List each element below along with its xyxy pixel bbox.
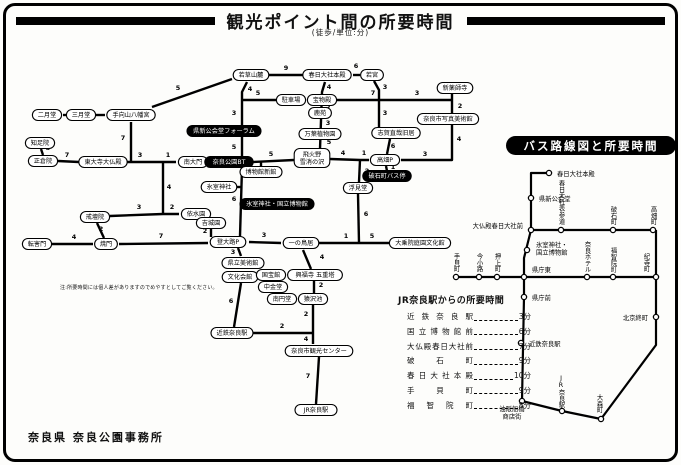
walk-time-label: 4 (341, 149, 346, 157)
walk-time-label: 6 (232, 195, 237, 203)
walk-node-label-kokuhokan: 国宝館 (262, 271, 281, 279)
walk-time-label: 2 (319, 281, 324, 289)
walk-time-label: 3 (137, 203, 142, 211)
bus-panel-title: バス路線図と所要時間 (506, 136, 676, 155)
jr-list-item-leader (474, 349, 518, 350)
walk-time-label: 2 (304, 310, 309, 318)
jr-list-item-name: 手貝町 (407, 385, 473, 396)
walk-node-label-gojunoto: 興福寺 五重塔 (295, 271, 335, 279)
walk-node-label-tegaimon: 転害門 (28, 240, 47, 248)
walk-node-label-wareishi-bt: 破石町バス停 (368, 172, 405, 180)
bus-stop-label-kencho-higashi: 県庁東 (532, 265, 552, 274)
walk-node-label-nanendo: 南円堂 (273, 295, 292, 303)
walk-time-label: 6 (391, 142, 396, 150)
walk-time-label: 3 (138, 151, 143, 159)
walk-node-label-kanko-center: 奈良市観光センター (291, 347, 347, 355)
jr-list-item: 国立博物館前6分 (398, 326, 531, 337)
walk-edge (249, 242, 281, 243)
walk-node-label-tobihino: 飛火野 (303, 150, 322, 158)
footnote: 注:所要時間には個人差がありますのでめやすとしてご覧ください。 (60, 284, 218, 291)
bus-stop-label-wareishi-cho: 破石町 (610, 205, 617, 226)
jr-list-item-leader (474, 334, 518, 335)
jr-list-item-time: 9分 (519, 355, 531, 366)
walk-node-label-yakimon: 焼門 (100, 240, 112, 248)
walk-node-label-pref-museum: 県立美術館 (228, 259, 259, 267)
walk-node-label-homotsuden: 宝物殿 (313, 96, 332, 104)
walk-edge (358, 194, 359, 243)
walk-node-label-forum: 県新公会堂フォーラム (193, 127, 255, 135)
walk-time-label: 3 (383, 109, 388, 117)
bus-stop-label-kintetsu-nara-eki: 近鉄奈良駅 (529, 339, 561, 348)
jr-list-item-name: 国立博物館前 (407, 326, 473, 337)
walk-node-label-chukondo: 中金堂 (264, 283, 283, 291)
walk-time-label: 4 (320, 253, 325, 261)
walk-time-label: 3 (423, 150, 428, 158)
walk-time-label: 3 (231, 248, 236, 256)
jr-list-item-leader (474, 393, 518, 394)
walk-node-label-parking: 駐車場 (282, 96, 301, 104)
walk-time-label: 6 (354, 62, 359, 70)
bus-stop-label-kencho-mae: 県庁前 (532, 293, 551, 302)
bus-stop-label-jr-nara-eki: JR奈良駅 (558, 375, 565, 409)
jr-list-item-time: 6分 (519, 326, 531, 337)
walk-time-label: 7 (371, 89, 376, 97)
walk-edge (316, 357, 319, 404)
walk-time-label: 2 (458, 102, 463, 110)
walk-edge (41, 149, 43, 155)
walk-edge (238, 248, 241, 256)
jr-list-item-name: 近鉄奈良駅 (407, 311, 473, 322)
bus-stop-nara-hotel (584, 274, 589, 279)
walk-time-label: 4 (167, 183, 172, 191)
bus-stop-label-himuro-kokuritsu: 氷室神社・国立博物館 (536, 240, 567, 257)
walk-time-label: 7 (65, 151, 70, 159)
bus-stop-omotesando (558, 227, 563, 232)
jr-list-item: 手貝町9分 (398, 385, 531, 396)
walk-edge (234, 283, 241, 327)
bus-stop-kencho-higashi (521, 274, 526, 279)
jr-list-item-name: 春日大社本殿 (407, 370, 473, 381)
walk-edge (330, 159, 369, 160)
walk-node-label-jr-nara: JR奈良駅 (303, 406, 329, 414)
walk-time-label: 3 (415, 89, 420, 97)
bus-stop-label-kenshin-kokaido: 県新公会堂 (539, 194, 570, 203)
bus-stop-kasuga-honden (546, 170, 551, 175)
jr-list-item: 近鉄奈良駅3分 (398, 311, 531, 322)
walk-edge (387, 139, 390, 154)
walk-time-label: 5 (232, 143, 237, 151)
bus-stop-oshiage-cho (494, 274, 499, 279)
walk-node-label-sangatsudo: 三月堂 (72, 111, 91, 119)
walk-time-label: 5 (269, 150, 274, 158)
walk-time-label: 2 (170, 203, 175, 211)
walk-node-label-wakakusa: 若草山麓 (239, 71, 264, 79)
walk-time-label: 7 (159, 232, 164, 240)
jr-list-header: JR奈良駅からの所要時間 (398, 293, 531, 306)
walk-edge (359, 160, 360, 182)
walk-node-label-museum-annex: 博物館新館 (246, 168, 277, 176)
bus-stop-kitakyobate-cho (653, 314, 658, 319)
walk-edge (110, 214, 179, 216)
walk-time-label: 3 (232, 109, 237, 117)
walk-edge (58, 161, 79, 162)
bus-stop-takabatake-cho (650, 227, 655, 232)
walk-node-label-daijoin: 大乗院庭園文化館 (395, 239, 445, 247)
jr-list-item: 破石町9分 (398, 355, 531, 366)
jr-list-item-leader (474, 320, 518, 321)
walk-node-label-takabatake-p: 高畑P (377, 156, 393, 164)
walk-time-label: 2 (280, 322, 285, 330)
bus-stop-omori-cho (598, 416, 603, 421)
walk-node-label-tobihino: 雪消の沢 (300, 158, 326, 166)
walk-time-label: 7 (306, 372, 311, 380)
walk-node-label-rokuen: 鹿苑 (314, 109, 326, 117)
walk-time-label: 1 (362, 149, 367, 157)
bus-stop-himuro-kokuritsu (524, 247, 529, 252)
walk-edge (242, 82, 247, 157)
bus-stop-label-oshiage-cho: 押上町 (494, 252, 501, 273)
bus-stop-label-kitakyobate-cho: 北京終町 (623, 313, 649, 322)
walk-time-label: 1 (166, 151, 171, 159)
walk-node-label-shiga-naoya: 志賀直哉旧居 (377, 129, 414, 137)
walk-time-label: 7 (121, 134, 126, 142)
jr-list-item: 福智院町8分 (398, 400, 531, 411)
jr-list-item-time: 3分 (519, 311, 531, 322)
walk-time-label: 5 (256, 89, 261, 97)
jr-list-item-leader (474, 408, 518, 409)
walk-node-label-yoshikien: 吉城園 (202, 220, 221, 227)
walk-node-label-himuro: 氷室神社 (207, 183, 232, 191)
walk-node-label-chisokuin: 知足院 (31, 139, 50, 147)
bus-stop-label-fukuchiin-cho: 福智院町 (610, 246, 617, 273)
walk-time-label: 3 (326, 119, 331, 127)
bus-stop-label-tegai-cho: 手貝町 (453, 252, 460, 273)
walk-time-label: 6 (229, 297, 234, 305)
walk-time-label: 4 (248, 85, 253, 93)
jr-list-rows: 近鉄奈良駅3分国立博物館前6分大仏殿春日大社前7分破石町9分春日大社本殿10分手… (398, 311, 531, 411)
walk-time-label: 5 (176, 84, 181, 92)
walk-node-label-kasuga-honden: 春日大社本殿 (308, 71, 345, 79)
bus-stop-label-nara-hotel: 奈良ホテル (584, 240, 591, 273)
walk-edge (303, 250, 311, 269)
bus-stop-label-daibutsuden-kasuga-mae: 大仏殿春日大社前 (473, 221, 523, 230)
walk-node-label-himuro-bt: 氷室神社・国立博物館 (246, 200, 308, 208)
walk-node-label-daibutsuden: 東大寺大仏殿 (84, 158, 121, 166)
walk-node-label-tamukeyama: 手向山八幡宮 (112, 111, 149, 119)
walk-node-label-nandaimon: 南大門 (184, 158, 203, 166)
walk-edge (119, 243, 208, 244)
walk-node-label-wakamiya: 若宮 (366, 71, 378, 79)
jr-list-item-time: 9分 (519, 385, 531, 396)
walk-node-label-noborioji-p: 登大路P (217, 238, 240, 246)
bus-stop-label-omori-cho: 大森町 (596, 393, 603, 414)
walk-edge (374, 81, 379, 127)
bus-stop-imakoji (476, 274, 481, 279)
walk-node-label-photo-museum: 奈良市写真美術館 (423, 115, 473, 123)
bus-stop-kenshin-kokaido (528, 195, 533, 200)
jr-list-item-leader (474, 379, 513, 380)
jr-list-item-time: 10分 (514, 370, 531, 381)
walk-time-label: 6 (364, 210, 369, 218)
jr-list-item-name: 大仏殿春日大社前 (407, 341, 473, 352)
walk-time-label: 3 (262, 231, 267, 239)
jr-list-item-name: 破石町 (407, 355, 473, 366)
jr-list-item: 大仏殿春日大社前7分 (398, 341, 531, 352)
jr-list-item-leader (474, 364, 518, 365)
walk-node-label-kintetsu-nara: 近鉄奈良駅 (217, 329, 248, 337)
walk-time-label: 4 (304, 335, 309, 343)
bus-stop-daibutsuden-kasuga-mae (528, 227, 533, 232)
walk-edge (152, 79, 232, 107)
bus-stop-label-imakoji: 今小路 (476, 252, 483, 274)
bus-stop-wareishi-cho (610, 227, 615, 232)
jr-list-item-time: 8分 (519, 400, 531, 411)
bus-stop-fukuchiin-cho (610, 274, 615, 279)
walk-node-label-bunka-kaikan: 文化会館 (228, 273, 253, 281)
walk-node-label-ichinotorii: 一の鳥居 (289, 239, 314, 247)
walk-node-label-ukimido: 浮見堂 (349, 184, 368, 192)
bus-stop-label-omotesando: 春日大社表参道 (558, 179, 565, 226)
jr-list-item-name: 福智院町 (407, 400, 473, 411)
publisher-credit: 奈良県 奈良公園事務所 (28, 429, 164, 445)
walk-time-label: 3 (383, 83, 388, 91)
jr-list-item-time: 7分 (519, 341, 531, 352)
jr-time-list: JR奈良駅からの所要時間 近鉄奈良駅3分国立博物館前6分大仏殿春日大社前7分破石… (398, 293, 531, 415)
walk-node-label-sarusawa: 猿沢池 (304, 295, 323, 303)
bus-stop-tegai-cho (453, 274, 458, 279)
walk-node-label-shosoin: 正倉院 (34, 157, 53, 165)
bus-stop-label-kasuga-honden: 春日大社本殿 (557, 169, 595, 178)
walk-node-label-manyo: 万葉植物園 (305, 130, 336, 138)
walk-time-label: 9 (284, 64, 289, 72)
walk-node-label-nigatsudo: 二月堂 (38, 111, 57, 119)
walk-node-label-shinyakushiji: 新薬師寺 (443, 84, 468, 92)
jr-list-item: 春日大社本殿10分 (398, 370, 531, 381)
walk-time-label: 4 (457, 135, 462, 143)
bus-stop-label-takabatake-cho: 高畑町 (650, 205, 657, 226)
bus-stop-label-kidera-cho: 紀寺町 (643, 252, 650, 273)
walk-edge (253, 160, 294, 162)
walk-time-label: 4 (327, 83, 332, 91)
walk-time-label: 2 (99, 225, 104, 233)
bus-stop-jr-nara-eki (559, 408, 564, 413)
walk-node-label-nara-park-bt: 奈良公園BT (213, 158, 246, 166)
walk-time-label: 4 (72, 233, 77, 241)
map-canvas: 5964535453573336243573154112674322472631… (0, 0, 681, 465)
bus-stop-kidera-cho (653, 274, 658, 279)
walk-time-label: 5 (370, 232, 375, 240)
walk-node-label-kaidanin: 戒壇院 (86, 213, 105, 221)
walk-time-label: 1 (344, 232, 349, 240)
